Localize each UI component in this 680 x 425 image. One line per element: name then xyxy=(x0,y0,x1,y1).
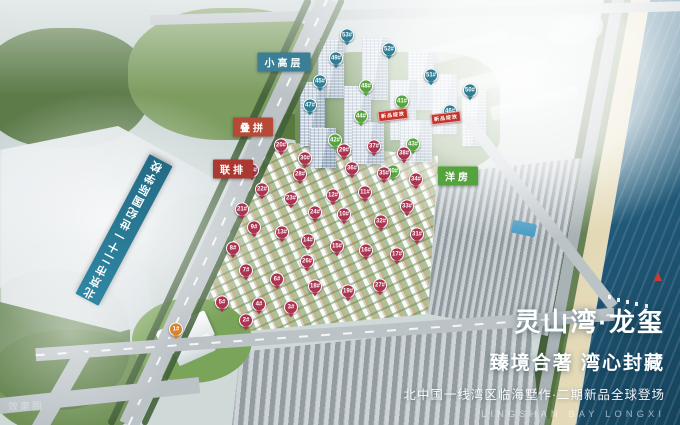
aerial-masterplan-rendering: 53#52#49#51#45#48#50#41#47#46#44#42#43#4… xyxy=(0,0,680,425)
watermark: 效果图 xyxy=(8,398,44,413)
zone-label[interactable]: 洋房 xyxy=(438,167,478,186)
zone-label[interactable]: 联排 xyxy=(213,160,253,179)
zone-label[interactable]: 叠拼 xyxy=(233,118,273,137)
project-title: 灵山湾·龙玺 xyxy=(403,302,665,339)
project-english-name: LINGSHAN BAY LONGXI xyxy=(403,409,665,420)
branding-block: 灵山湾·龙玺 臻境合著 湾心封藏 北中国一线湾区临海墅作·二期新品全球登场 LI… xyxy=(403,302,665,420)
zone-label[interactable]: 小高层 xyxy=(258,53,311,72)
project-tagline: 北中国一线湾区临海墅作·二期新品全球登场 xyxy=(403,384,665,403)
project-subtitle: 臻境合著 湾心封藏 xyxy=(403,348,665,375)
